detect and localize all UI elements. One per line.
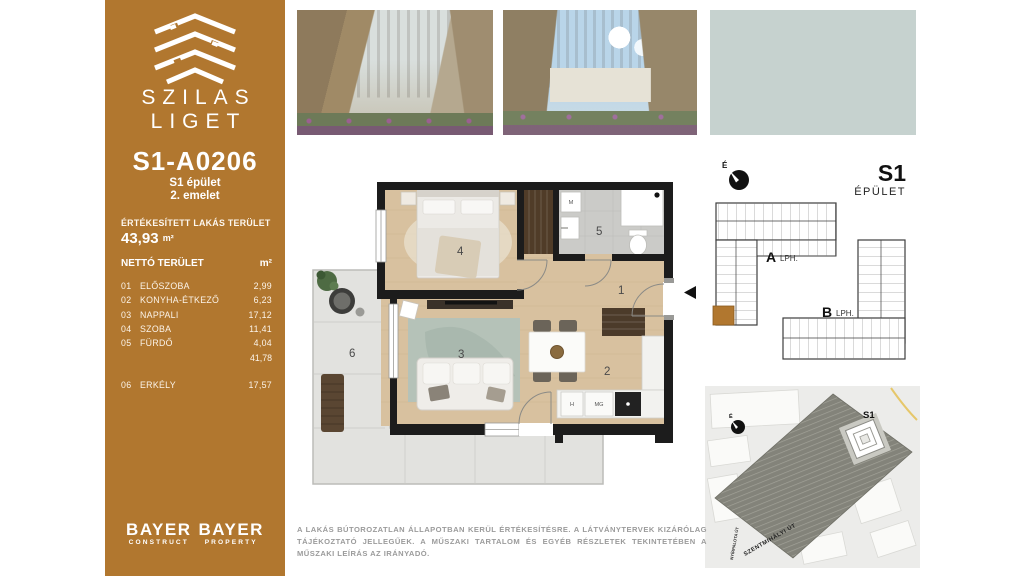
room-number-2: 2 <box>604 366 610 378</box>
toilet <box>630 235 647 255</box>
render-photo-1 <box>297 10 493 135</box>
building-key-plan: É S1 ÉPÜLET <box>700 148 922 376</box>
unit-floor: 2. emelet <box>105 190 285 202</box>
table-row-balcony: 06 ERKÉLY 17,57 <box>121 378 272 392</box>
pillow <box>423 200 455 214</box>
table-row: 01 ELŐSZOBA 2,99 <box>121 279 272 293</box>
sofa-cushion <box>423 363 450 384</box>
shower-head <box>654 192 659 197</box>
net-table-header: NETTÓ TERÜLET m² <box>121 258 272 269</box>
table-subtotal: 41,78 <box>121 350 272 364</box>
north-compass-icon: É <box>722 161 749 190</box>
side-table <box>399 300 418 319</box>
compass-n-label: É <box>722 161 728 170</box>
brand-name-line2: LIGET <box>105 110 285 134</box>
highlighted-unit <box>713 306 734 325</box>
sitemap-s1-label: S1 <box>863 410 875 421</box>
site-map: S1 É SZENTMIHÁLYI ÚT NYÍRPALOTA ÚT <box>705 386 920 568</box>
nightstand <box>401 192 416 205</box>
table-row: 03 NAPPALI 17,12 <box>121 308 272 322</box>
hall-wardrobe <box>524 190 553 254</box>
stair-a-letter: A <box>766 249 776 265</box>
room-number-3: 3 <box>458 349 464 361</box>
sofa-cushion <box>483 363 510 384</box>
unit-id: S1-A0206 <box>105 146 285 177</box>
table-row: 04 SZOBA 11,41 <box>121 322 272 336</box>
plant-leaf <box>317 271 326 280</box>
wing-b <box>783 240 905 359</box>
unit-building: S1 épület <box>105 177 285 189</box>
pillow <box>461 200 493 214</box>
render-photo-2 <box>503 10 697 135</box>
tv <box>445 301 497 305</box>
sitemap-compass-n: É <box>729 412 733 420</box>
room-number-5: 5 <box>596 226 602 238</box>
dining-chair <box>559 320 577 332</box>
bayer-property-logo: BAYER PROPERTY <box>199 521 264 547</box>
render-photo-3 <box>710 10 916 135</box>
roof-chevrons-icon <box>147 12 243 86</box>
keyplan-subtitle: ÉPÜLET <box>854 185 906 198</box>
nightstand <box>500 192 515 205</box>
dining-chair <box>533 320 551 332</box>
disclaimer-text: A LAKÁS BÚTOROZATLAN ÁLLAPOTBAN KERÜL ÉR… <box>297 524 707 559</box>
sidebar: SZILAS LIGET S1-A0206 S1 épület 2. emele… <box>105 0 285 576</box>
bayer-construct-logo: BAYER CONSTRUCT <box>126 521 191 547</box>
sold-area-number: 43,93 <box>121 230 159 247</box>
stair-b-letter: B <box>822 304 832 320</box>
sofa-cushion <box>453 363 480 384</box>
stair-b-label: LPH. <box>836 309 854 318</box>
table-row: 05 FÜRDŐ 4,04 <box>121 336 272 350</box>
sold-area-value: 43,93 m² <box>121 230 174 247</box>
keyplan-title: S1 <box>878 160 906 186</box>
brochure-page: SZILAS LIGET S1-A0206 S1 épület 2. emele… <box>0 0 1024 576</box>
net-table-unit: m² <box>260 258 272 269</box>
net-table-label: NETTÓ TERÜLET <box>121 258 204 269</box>
balcony-chair-cushion <box>334 293 351 310</box>
room-number-1: 1 <box>618 285 624 297</box>
fridge-label: H <box>570 402 574 408</box>
table-centerpiece <box>551 346 564 359</box>
table-row: 02 KONYHA-ÉTKEZŐ 6,23 <box>121 293 272 307</box>
sun-lounger <box>321 374 344 432</box>
washer-label: M <box>569 200 574 206</box>
brand-name-line1: SZILAS <box>105 86 285 110</box>
net-table-rows: 01 ELŐSZOBA 2,99 02 KONYHA-ÉTKEZŐ 6,23 0… <box>121 279 272 392</box>
dishwasher-label: MG <box>594 402 603 408</box>
room-number-4: 4 <box>457 246 464 258</box>
sold-area-unit: m² <box>163 233 174 243</box>
room-number-6: 6 <box>349 348 355 360</box>
stair-a-label: LPH. <box>780 254 798 263</box>
entrance-arrow-icon <box>684 286 696 299</box>
cooktop-knob <box>626 402 630 406</box>
balcony-side-table <box>356 308 365 317</box>
sold-area-label: ÉRTÉKESÍTETT LAKÁS TERÜLET <box>121 218 279 228</box>
szilas-liget-logo <box>105 12 285 91</box>
footer-logos: BAYER CONSTRUCT BAYER PROPERTY <box>105 521 285 547</box>
apartment-floor-plan: 1 2 3 4 5 6 M H MG <box>305 162 700 502</box>
kitchen-counter-right <box>642 336 666 390</box>
bed-headboard <box>417 190 499 197</box>
